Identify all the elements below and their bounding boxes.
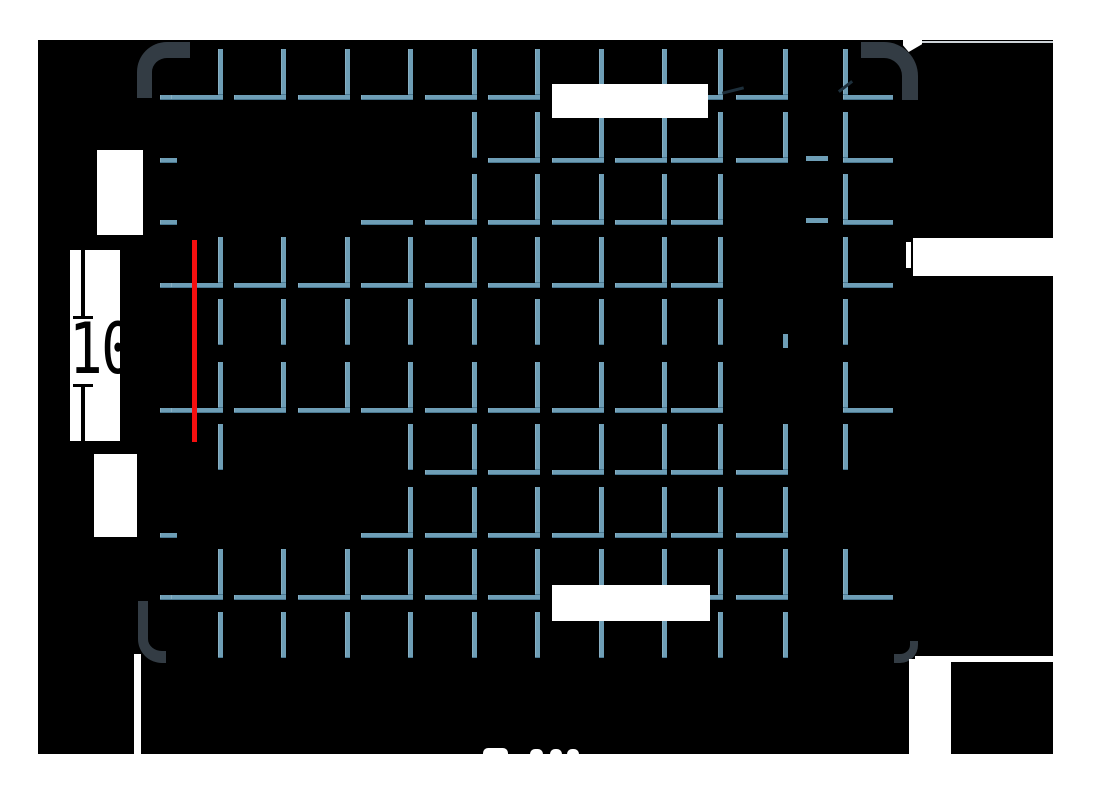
grid-mark-horizontal	[552, 408, 604, 413]
grid-mark-horizontal	[736, 470, 788, 475]
grid-mark-vertical	[718, 424, 723, 470]
grid-mark-horizontal	[615, 283, 667, 288]
grid-mark-horizontal	[298, 408, 350, 413]
grid-mark-vertical	[599, 237, 604, 283]
grid-mark-vertical	[843, 112, 848, 158]
grid-mark-fragment	[783, 334, 788, 348]
grid-mark-horizontal	[671, 220, 723, 225]
grid-mark-vertical	[662, 487, 667, 533]
grid-mark-vertical	[345, 362, 350, 408]
grid-mark-vertical	[472, 237, 477, 283]
grid-mark-vertical	[408, 362, 413, 408]
grid-mark-horizontal	[425, 470, 477, 475]
dimension-annotation-left: 10	[70, 250, 120, 441]
grid-mark-horizontal	[615, 158, 667, 163]
grid-mark-horizontal	[488, 220, 540, 225]
dimension-label-upper-left	[97, 150, 143, 235]
grid-mark-vertical	[472, 49, 477, 95]
grid-mark-vertical	[345, 549, 350, 595]
grid-mark-horizontal	[171, 283, 223, 288]
grid-mark-vertical	[843, 174, 848, 220]
clipped-text-bump	[530, 749, 543, 756]
grid-mark-vertical	[843, 549, 848, 595]
grid-mark-horizontal	[488, 95, 540, 100]
grid-mark-horizontal	[671, 158, 723, 163]
grid-mark-vertical	[281, 549, 286, 595]
grid-mark-vertical	[472, 112, 477, 158]
grid-mark-horizontal	[160, 220, 177, 225]
grid-mark-horizontal	[552, 220, 604, 225]
grid-mark-horizontal	[671, 533, 723, 538]
grid-mark-vertical	[662, 112, 667, 158]
dimension-tick	[73, 316, 93, 319]
grid-mark-vertical	[843, 237, 848, 283]
grid-mark-horizontal	[615, 533, 667, 538]
grid-mark-vertical	[408, 487, 413, 533]
grid-mark-vertical	[535, 362, 540, 408]
grid-mark-fragment	[806, 218, 828, 223]
grid-mark-horizontal	[671, 283, 723, 288]
drawing-stage: 10	[0, 0, 1100, 799]
grid-mark-vertical	[783, 549, 788, 595]
dimension-tick	[73, 384, 93, 387]
grid-mark-horizontal	[552, 158, 604, 163]
highlighted-edge	[192, 240, 197, 442]
grid-mark-horizontal	[552, 533, 604, 538]
grid-mark-vertical	[599, 362, 604, 408]
grid-mark-vertical	[218, 237, 223, 283]
grid-mark-horizontal	[736, 158, 788, 163]
grid-mark-vertical	[718, 299, 723, 345]
grid-mark-horizontal	[488, 158, 540, 163]
grid-mark-vertical	[599, 299, 604, 345]
grid-mark-vertical	[783, 612, 788, 658]
grid-mark-horizontal	[736, 533, 788, 538]
extension-strip-bottom-right	[909, 659, 951, 754]
grid-mark-vertical	[281, 237, 286, 283]
grid-mark-horizontal	[488, 470, 540, 475]
grid-mark-vertical	[472, 299, 477, 345]
grid-mark-vertical	[599, 487, 604, 533]
grid-mark-horizontal	[298, 283, 350, 288]
grid-mark-vertical	[281, 362, 286, 408]
grid-mark-vertical	[535, 612, 540, 658]
grid-mark-vertical	[535, 237, 540, 283]
grid-mark-horizontal	[615, 470, 667, 475]
grid-mark-vertical	[718, 362, 723, 408]
grid-mark-vertical	[281, 49, 286, 95]
grid-mark-vertical	[718, 237, 723, 283]
grid-mark-horizontal	[298, 95, 350, 100]
grid-mark-fragment	[806, 156, 828, 161]
grid-mark-horizontal	[488, 283, 540, 288]
grid-mark-horizontal	[361, 533, 413, 538]
grid-mark-vertical	[535, 49, 540, 95]
pallet-corner-bottom-left	[138, 601, 166, 663]
grid-mark-vertical	[662, 299, 667, 345]
grid-mark-vertical	[599, 112, 604, 158]
grid-mark-horizontal	[171, 595, 223, 600]
grid-mark-vertical	[472, 362, 477, 408]
grid-mark-horizontal	[488, 533, 540, 538]
grid-mark-vertical	[718, 49, 723, 95]
grid-mark-vertical	[408, 49, 413, 95]
grid-mark-vertical	[408, 549, 413, 595]
grid-mark-horizontal	[671, 408, 723, 413]
grid-mark-vertical	[408, 424, 413, 470]
grid-mark-vertical	[783, 112, 788, 158]
grid-mark-vertical	[535, 299, 540, 345]
grid-mark-horizontal	[488, 595, 540, 600]
grid-mark-horizontal	[234, 595, 286, 600]
grid-mark-vertical	[281, 612, 286, 658]
extension-line-bottom-left	[134, 654, 141, 754]
grid-mark-vertical	[718, 612, 723, 658]
grid-mark-vertical	[599, 174, 604, 220]
pallet-corner-top-left	[137, 42, 190, 98]
dimension-text: 10	[70, 314, 120, 384]
grid-mark-horizontal	[160, 158, 177, 163]
dimension-label-right	[913, 238, 1053, 276]
dimension-label-lower-left	[94, 454, 137, 537]
dimension-tick-right	[906, 242, 911, 268]
clipped-text-bump	[483, 748, 508, 756]
dimension-label-top	[552, 84, 708, 118]
grid-mark-vertical	[662, 237, 667, 283]
grid-mark-vertical	[408, 612, 413, 658]
grid-mark-vertical	[599, 424, 604, 470]
grid-mark-horizontal	[298, 595, 350, 600]
grid-mark-vertical	[218, 549, 223, 595]
grid-mark-vertical	[218, 49, 223, 95]
extension-line-top-right	[920, 41, 1053, 43]
grid-mark-horizontal	[361, 283, 413, 288]
dimension-label-bottom	[552, 585, 710, 621]
grid-mark-horizontal	[671, 470, 723, 475]
grid-mark-horizontal	[736, 595, 788, 600]
grid-mark-vertical	[345, 237, 350, 283]
grid-mark-horizontal	[361, 408, 413, 413]
grid-mark-vertical	[843, 362, 848, 408]
grid-mark-vertical	[662, 424, 667, 470]
grid-mark-vertical	[718, 549, 723, 595]
grid-mark-vertical	[718, 487, 723, 533]
grid-mark-vertical	[472, 424, 477, 470]
grid-mark-horizontal	[425, 595, 477, 600]
grid-mark-vertical	[535, 112, 540, 158]
grid-mark-vertical	[408, 299, 413, 345]
grid-mark-horizontal	[234, 95, 286, 100]
grid-mark-vertical	[662, 362, 667, 408]
grid-mark-horizontal	[425, 533, 477, 538]
grid-mark-horizontal	[234, 408, 286, 413]
extension-seam-bottom-right	[915, 656, 1053, 662]
grid-mark-vertical	[472, 174, 477, 220]
grid-mark-vertical	[345, 299, 350, 345]
grid-mark-horizontal	[425, 283, 477, 288]
grid-mark-horizontal	[843, 158, 893, 163]
grid-mark-vertical	[535, 487, 540, 533]
grid-mark-vertical	[535, 549, 540, 595]
grid-mark-vertical	[218, 612, 223, 658]
grid-mark-vertical	[218, 299, 223, 345]
grid-mark-vertical	[535, 174, 540, 220]
grid-mark-vertical	[472, 487, 477, 533]
dimension-line	[81, 386, 85, 441]
grid-mark-horizontal	[425, 408, 477, 413]
grid-mark-horizontal	[160, 533, 177, 538]
grid-mark-horizontal	[843, 595, 893, 600]
grid-mark-vertical	[662, 174, 667, 220]
grid-mark-vertical	[281, 299, 286, 345]
grid-mark-vertical	[345, 612, 350, 658]
grid-mark-vertical	[472, 612, 477, 658]
grid-mark-vertical	[718, 174, 723, 220]
grid-mark-vertical	[843, 299, 848, 345]
grid-mark-vertical	[408, 237, 413, 283]
grid-mark-horizontal	[361, 95, 413, 100]
grid-mark-vertical	[843, 424, 848, 470]
grid-mark-horizontal	[171, 408, 223, 413]
grid-mark-vertical	[783, 487, 788, 533]
grid-mark-horizontal	[552, 283, 604, 288]
grid-mark-horizontal	[843, 408, 893, 413]
clipped-text-bump	[550, 749, 562, 756]
clipped-text-bump	[567, 749, 579, 756]
grid-mark-horizontal	[425, 220, 477, 225]
grid-mark-vertical	[783, 49, 788, 95]
grid-mark-horizontal	[361, 595, 413, 600]
grid-mark-horizontal	[488, 408, 540, 413]
grid-mark-horizontal	[736, 95, 788, 100]
grid-mark-horizontal	[843, 220, 893, 225]
grid-mark-vertical	[345, 49, 350, 95]
grid-mark-vertical	[472, 549, 477, 595]
dimension-line	[81, 250, 85, 318]
grid-mark-horizontal	[234, 283, 286, 288]
grid-mark-vertical	[218, 362, 223, 408]
grid-mark-horizontal	[615, 408, 667, 413]
grid-mark-horizontal	[615, 220, 667, 225]
grid-mark-vertical	[535, 424, 540, 470]
grid-mark-horizontal	[552, 470, 604, 475]
grid-mark-horizontal	[425, 95, 477, 100]
grid-mark-vertical	[718, 112, 723, 158]
grid-mark-horizontal	[843, 283, 893, 288]
grid-mark-vertical	[783, 424, 788, 470]
grid-mark-horizontal	[361, 220, 413, 225]
grid-mark-vertical	[218, 424, 223, 470]
